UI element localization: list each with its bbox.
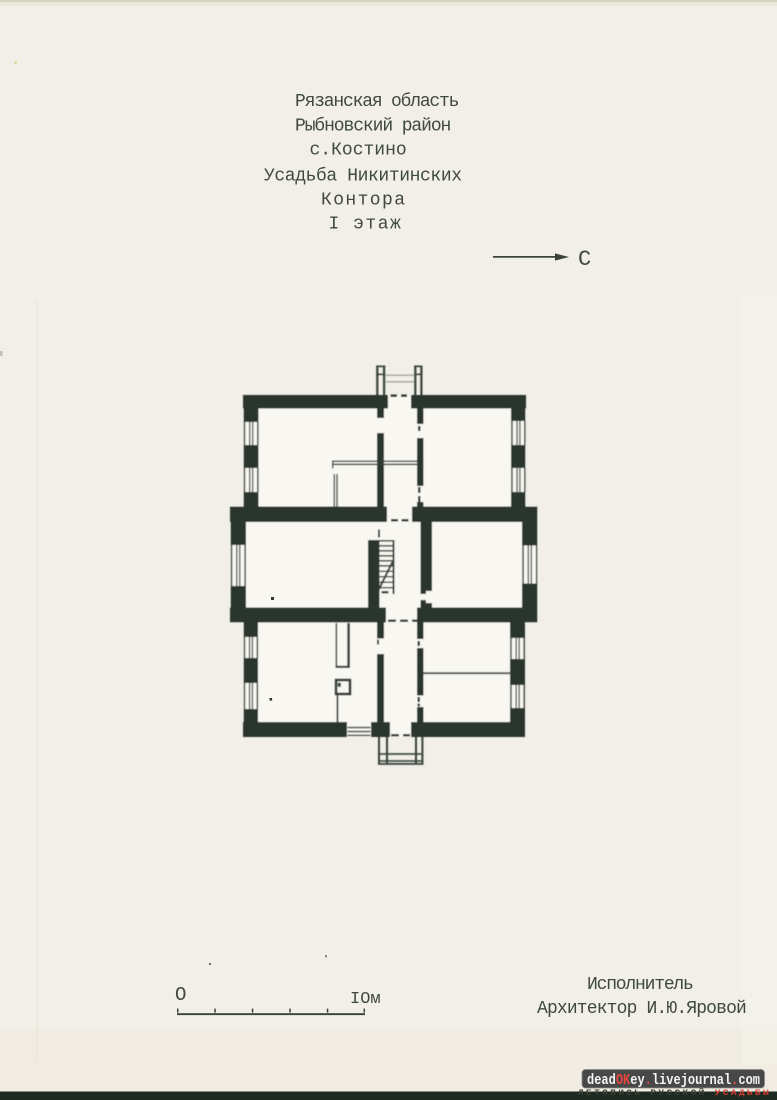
svg-text:О: О: [175, 984, 186, 1006]
svg-text:Исполнитель: Исполнитель: [587, 975, 693, 995]
svg-text:С: С: [578, 247, 591, 272]
svg-text:IОм: IОм: [350, 990, 381, 1009]
svg-text:I этаж: I этаж: [329, 215, 403, 235]
svg-text:Рыбновский район: Рыбновский район: [295, 116, 451, 137]
svg-text:Архитектор И.Ю.Яровой: Архитектор И.Ю.Яровой: [537, 999, 746, 1019]
svg-text:с.Костино: с.Костино: [310, 141, 407, 161]
svg-text:Усадьба Никитинских: Усадьба Никитинских: [264, 166, 462, 187]
svg-text:Контора: Контора: [321, 191, 406, 211]
svg-text:Рязанская область: Рязанская область: [295, 91, 459, 112]
svg-text:deadOKey.livejournal.com: deadOKey.livejournal.com: [587, 1073, 760, 1089]
svg-text:ЛЕТОПИСЬ РУССКОЙ УСАДЬБЫ: ЛЕТОПИСЬ РУССКОЙ УСАДЬБЫ: [578, 1089, 771, 1098]
